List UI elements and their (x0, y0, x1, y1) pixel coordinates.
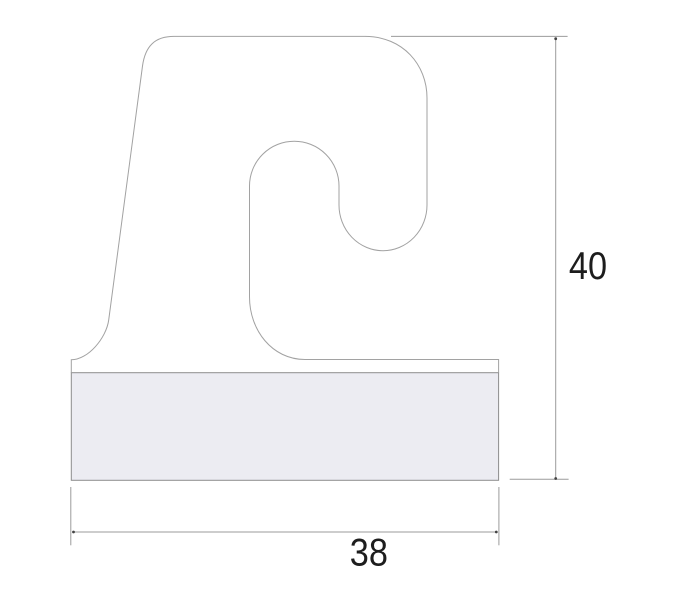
svg-text:40: 40 (569, 244, 607, 288)
svg-text:38: 38 (350, 530, 388, 574)
